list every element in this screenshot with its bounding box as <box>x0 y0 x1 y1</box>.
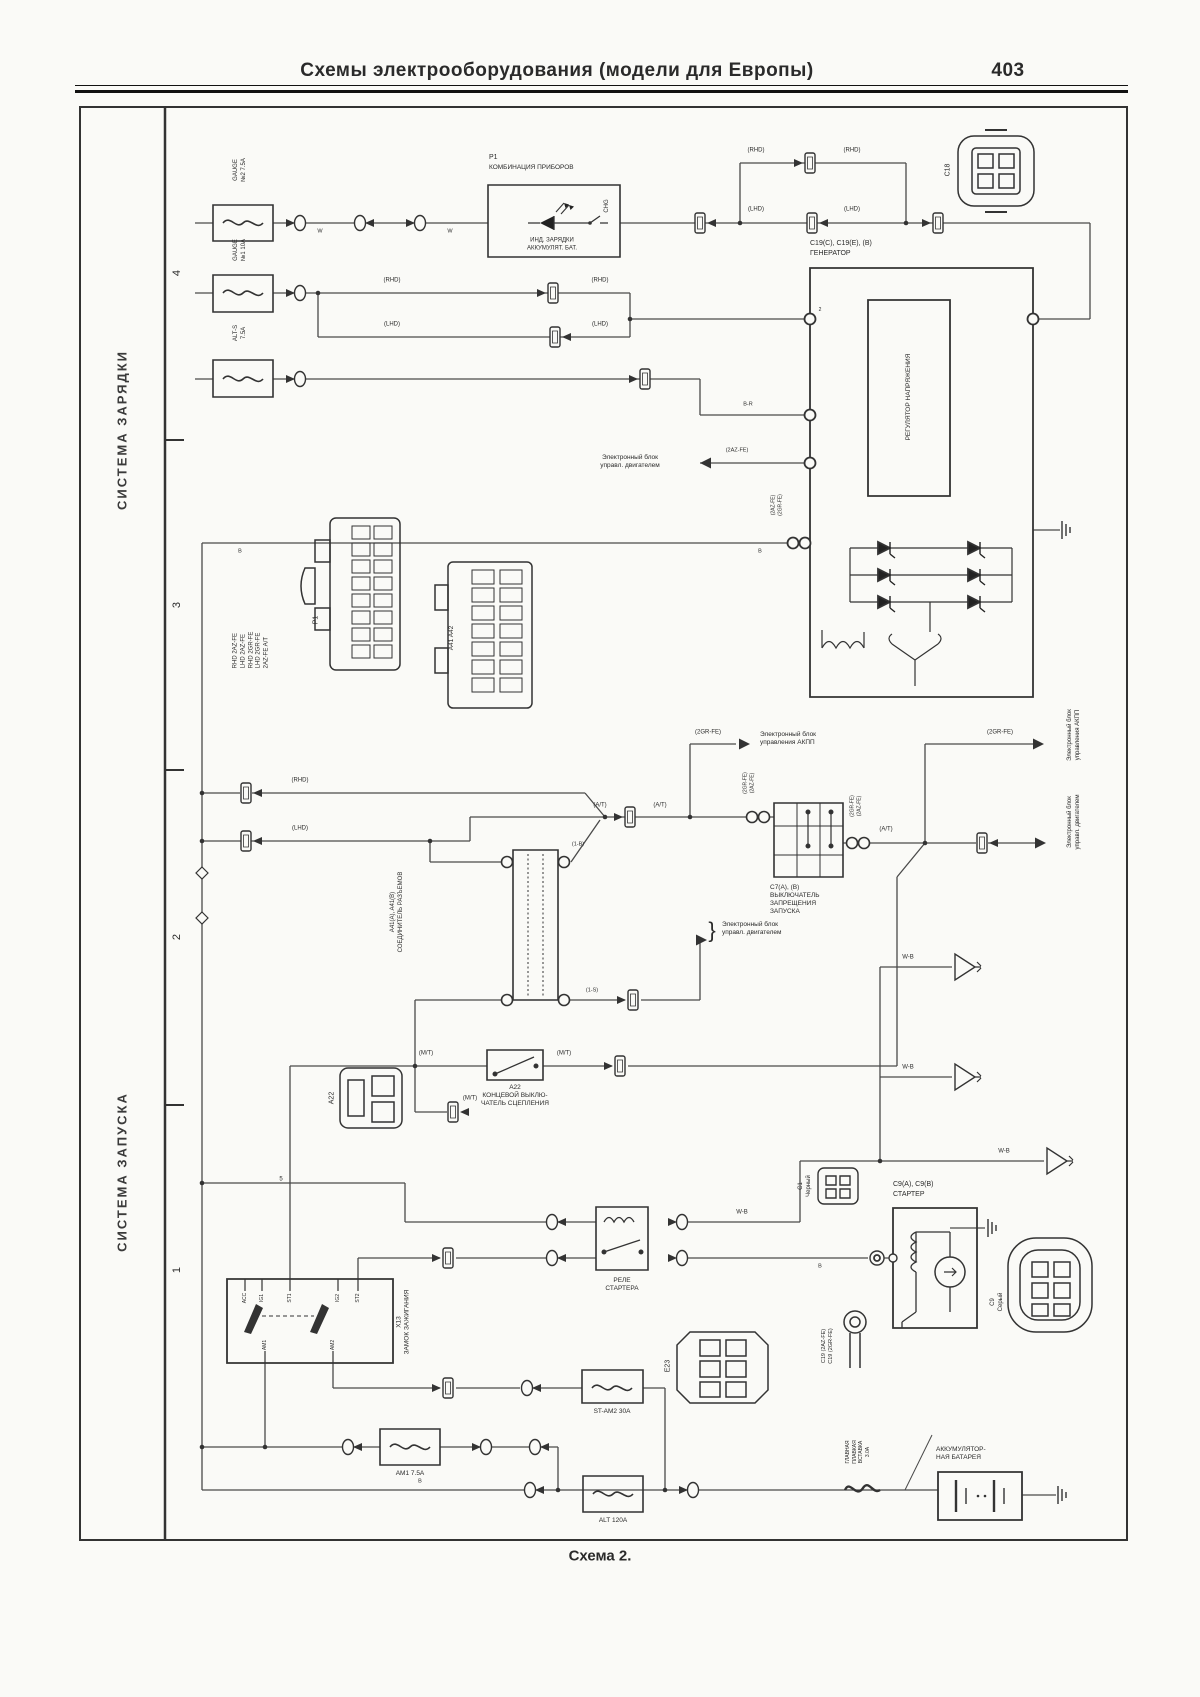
ignition-switch-label: X13 ЗАМОК ЗАЖИГАНИЯ <box>396 1290 413 1355</box>
wire-color-b-main: B <box>418 1479 422 1486</box>
ign-terminal-st1: ST1 <box>287 1293 294 1302</box>
fuse-gauge2-label: GAUGE №2 7.5A <box>233 158 249 182</box>
junction-connector-label: A41(A), A41(B) СОЕДИНИТЕЛЬ РАЗЪЕМОВ <box>390 872 406 953</box>
fuse-alt-s-label: ALT-S 7.5A <box>233 325 249 341</box>
wire-color-w-2: W <box>447 229 452 236</box>
wire-label-rhd-3: (RHD) <box>384 277 401 285</box>
cluster-code: P1 <box>489 154 498 163</box>
wire-label-at-1: (A/T) <box>593 802 606 810</box>
main-fusible-link-label: ГЛАВНАЯ ПЛАВКАЯ ВСТАВКА 3.0A <box>845 1440 871 1463</box>
c18-connector <box>958 130 1034 212</box>
wire-label-lhd-1: (LHD) <box>748 206 764 214</box>
diagram-caption: Схема 2. <box>569 1548 632 1567</box>
ecu-at-label: Электронный блок управления АКПП <box>760 731 816 747</box>
regulator-label: РЕГУЛЯТОР НАПРЯЖЕНИЯ <box>905 354 913 441</box>
wire-label-mt-3: (M/T) <box>463 1095 477 1103</box>
sidebar-charging-system: СИСТЕМА ЗАРЯДКИ <box>115 350 132 510</box>
ground-symbols <box>955 521 1073 1504</box>
schematic-canvas <box>0 0 1200 1697</box>
e23-connector <box>677 1332 768 1403</box>
engine-variant-legend: RHD 2AZ-FE LHD 2AZ-FE RHD 2GR-FE LHD 2GR… <box>233 632 272 669</box>
ecu-engine-label-right: Электронный блок управл. двигателем <box>1067 795 1083 850</box>
wire-label-rhd-2: (RHD) <box>844 147 861 155</box>
wire-color-w-1: W <box>317 229 322 236</box>
c1-connector <box>818 1168 858 1204</box>
fuse-alt-label: ALT 120A <box>599 1517 627 1525</box>
wire-label-lhd-2: (LHD) <box>844 206 860 214</box>
wire-label-mt-1: (M/T) <box>419 1050 433 1058</box>
generator-code: C19(C), C19(E), (B) <box>810 240 872 249</box>
battery-label: АККУМУЛЯТОР- НАЯ БАТАРЕЯ <box>936 1446 986 1462</box>
generator-name: ГЕНЕРАТОР <box>810 250 851 259</box>
wire-label-lhd-4: (LHD) <box>592 321 608 329</box>
ign-terminal-am1: AM1 <box>262 1340 269 1350</box>
junction-connector <box>502 850 570 1006</box>
ecu-at-label-right: Электронный блок управления АКПП <box>1067 709 1083 761</box>
clutch-switch-label: A22 КОНЦЕВОЙ ВЫКЛЮ- ЧАТЕЛЬ СЦЕПЛЕНИЯ <box>481 1084 549 1108</box>
fuse-st-am2-label: ST-AM2 30A <box>594 1408 631 1416</box>
c9-connector <box>1008 1238 1092 1332</box>
wire-label-rhd-4: (RHD) <box>592 277 609 285</box>
cluster-indicator-label: ИНД. ЗАРЯДКИ АККУМУЛЯТ. БАТ. <box>527 238 577 253</box>
wire-color-b-starter: B <box>818 1264 822 1271</box>
ground-wb-3: W-B <box>998 1148 1010 1156</box>
ecu-engine-label-mid: Электронный блок управл. двигателем <box>722 921 781 937</box>
wire-label-rhd-1: (RHD) <box>748 147 765 155</box>
wire-label-2grfe-2: (2GR-FE) <box>987 729 1013 737</box>
ecu-engine-charging: Электронный блок управл. двигателем <box>600 454 659 470</box>
wire-label-at-3: (A/T) <box>879 826 892 834</box>
ign-terminal-acc: ACC <box>242 1293 249 1304</box>
battery <box>938 1472 1022 1520</box>
wire-label-2azfe: (2AZ-FE) <box>726 448 749 455</box>
section-number-1: 1 <box>170 1267 184 1273</box>
generator-terminal-codes: (2AZ-FE) (2GR-FE) <box>771 494 784 516</box>
wire-label-lhd-3: (LHD) <box>384 321 400 329</box>
wire-color-br: B-R <box>743 402 752 409</box>
brace-glyph: } <box>708 916 715 944</box>
ring-terminal <box>844 1311 866 1368</box>
section-number-3: 3 <box>170 602 184 608</box>
e23-connector-label: E23 <box>663 1360 672 1372</box>
pnp-switch-label: C7(A), (B) ВЫКЛЮЧАТЕЛЬ ЗАПРЕЩЕНИЯ ЗАПУСК… <box>770 884 820 917</box>
starter-relay-label: РЕЛЕ СТАРТЕРА <box>605 1277 638 1293</box>
generator-pin-2: 2 <box>819 307 822 313</box>
pnp-terminal-codes-right: (2GR-FE) (2AZ-FE) <box>850 795 863 817</box>
ground-wb-1: W-B <box>902 954 914 962</box>
sidebar-starting-system: СИСТЕМА ЗАПУСКА <box>115 1092 132 1252</box>
wire-pin-5: 5 <box>279 1176 282 1184</box>
c9-connector-label: C9 Серый <box>990 1293 1006 1312</box>
wire-label-lhd-k2: (LHD) <box>292 825 308 833</box>
wire-color-b-1: B <box>238 549 242 556</box>
wire-label-rhd-k1: (RHD) <box>292 777 309 785</box>
wire-label-2grfe-1: (2GR-FE) <box>695 729 721 737</box>
ign-terminal-st2: ST2 <box>355 1293 362 1302</box>
manual-page: Схемы электрооборудования (модели для Ев… <box>0 0 1200 1697</box>
starter-relay <box>596 1207 648 1270</box>
starter <box>870 1208 977 1328</box>
ign-terminal-am2: AM2 <box>330 1340 337 1350</box>
section-number-2: 2 <box>170 934 184 940</box>
wire-label-1s: (1-S) <box>586 988 598 995</box>
wires <box>195 163 1090 1495</box>
c1-connector-label: C1 Черный <box>798 1175 814 1197</box>
p1-connector-label: P1 <box>311 616 320 625</box>
wire-color-b-2: B <box>758 549 762 556</box>
cluster-name: КОМБИНАЦИЯ ПРИБОРОВ <box>489 164 574 172</box>
ground-wb-2: W-B <box>902 1064 914 1072</box>
wire-label-1b: (1-B) <box>572 842 584 849</box>
fuse-am1-label: AM1 7.5A <box>396 1470 425 1478</box>
starter-name-label: СТАРТЕР <box>893 1191 925 1200</box>
section-number-4: 4 <box>170 270 184 276</box>
wire-label-mt-2: (M/T) <box>557 1050 571 1058</box>
pnp-terminal-codes-left: (2GR-FE) (2AZ-FE) <box>743 772 756 794</box>
a22-connector <box>340 1068 402 1128</box>
ring-terminal-label: C19 (2AZ-FE) C19 (2GR-FE) <box>821 1328 835 1363</box>
a41-a42-connector-label: A41 A42 <box>448 626 456 651</box>
p1-connector <box>301 518 400 670</box>
clutch-switch <box>487 1050 543 1080</box>
generator-box <box>788 268 1039 697</box>
ign-terminal-ig1: IG1 <box>259 1294 266 1302</box>
starter-code-label: C9(A), C9(B) <box>893 1181 933 1190</box>
ignition-switch <box>227 1279 393 1363</box>
chg-label: CHG <box>604 199 612 212</box>
c18-label: C18 <box>943 164 952 177</box>
wire-label-at-2: (A/T) <box>653 802 666 810</box>
fuse-gauge1-label: GAUGE №1 10A <box>233 239 249 261</box>
a22-connector-label: A22 <box>327 1092 336 1104</box>
ign-terminal-ig2: IG2 <box>335 1294 342 1302</box>
ground-wb-4: W-B <box>736 1209 748 1217</box>
flow-arrows <box>696 458 1046 946</box>
